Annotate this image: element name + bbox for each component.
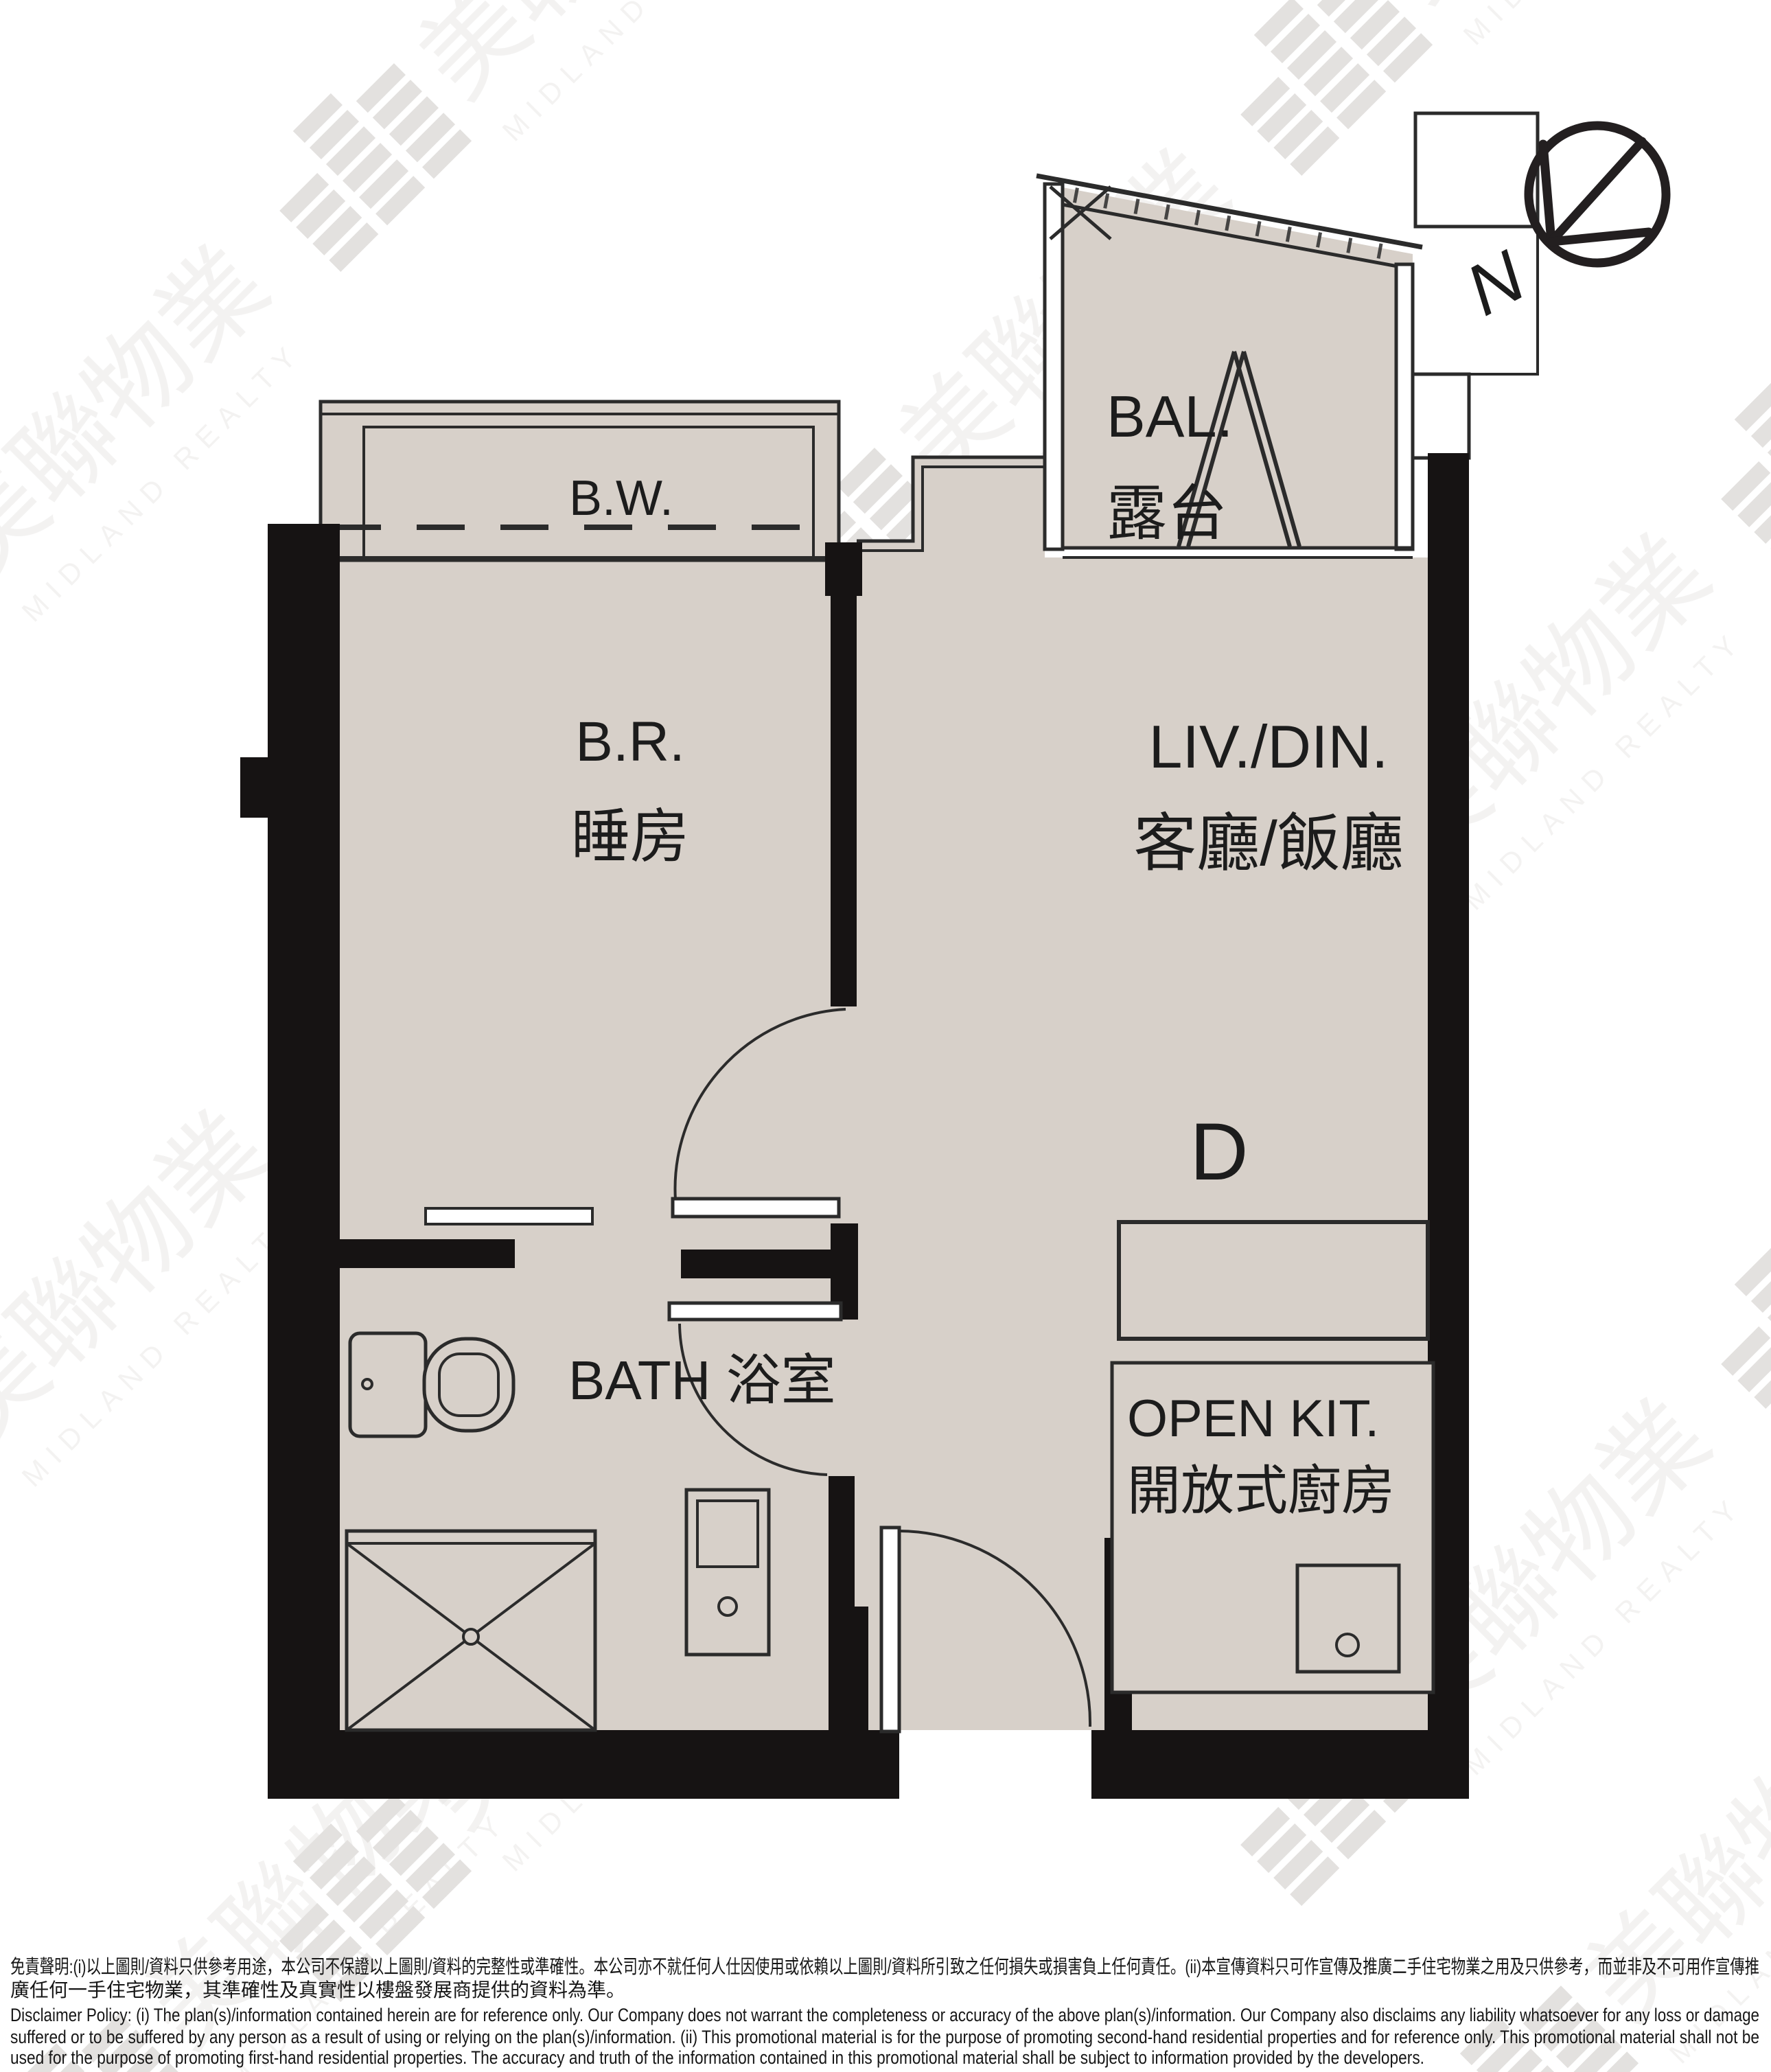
shower-drain bbox=[463, 1629, 478, 1644]
bedroom-living-wall bbox=[831, 560, 857, 1006]
bedroom-bath-wall bbox=[340, 1239, 515, 1268]
compass-arrow-icon bbox=[1543, 141, 1649, 242]
toilet-button bbox=[362, 1379, 372, 1389]
disclaimer-en-line-1: Disclaimer Policy: (i) The plan(s)/infor… bbox=[10, 2005, 1759, 2025]
entry-jamb-left bbox=[829, 1607, 868, 1730]
kitchen-counter bbox=[1119, 1222, 1428, 1339]
toilet-bowl-inner bbox=[439, 1354, 498, 1416]
kitchen-appliance-knob bbox=[1336, 1634, 1358, 1656]
balcony-label-zh: 露台 bbox=[1107, 479, 1227, 547]
balcony-left-wall bbox=[1045, 184, 1063, 549]
bedroom-label-zh: 睡房 bbox=[571, 804, 689, 870]
bath-sink bbox=[697, 1501, 758, 1567]
disclaimer-zh-line-1: 免責聲明:(i)以上圖則/資料只供參考用途，本公司不保證以上圖則/資料的完整性或… bbox=[10, 1956, 1759, 1977]
left-exterior-wall bbox=[268, 524, 340, 1799]
living-dining-label-zh: 客廳/飯廳 bbox=[1133, 809, 1404, 879]
bath-sliding-door bbox=[669, 1303, 841, 1320]
unit-label: D bbox=[1190, 1107, 1248, 1197]
bottom-wall-left bbox=[268, 1730, 899, 1799]
bath-top-wall bbox=[681, 1250, 831, 1278]
bath-sink-drain bbox=[719, 1598, 737, 1615]
bay-window-label: B.W. bbox=[569, 471, 673, 526]
bedroom-door-leaf bbox=[673, 1199, 839, 1217]
floor-plan-page: 美聯物業 MIDLAND REALTY bbox=[0, 0, 1771, 2072]
bottom-wall-right bbox=[1091, 1730, 1469, 1799]
top-right-exterior-ledge bbox=[1415, 113, 1538, 227]
open-kitchen-label: OPEN KIT. bbox=[1127, 1390, 1379, 1448]
disclaimer-zh-line-2: 廣任何一手住宅物業，其準確性及真實性以樓盤發展商提供的資料為準。 bbox=[10, 1979, 625, 2001]
open-kitchen-label-zh: 開放式廚房 bbox=[1127, 1460, 1395, 1521]
living-dining-label: LIV./DIN. bbox=[1149, 713, 1389, 781]
balcony-label: BAL. bbox=[1107, 384, 1233, 450]
balcony-right-wall bbox=[1396, 264, 1413, 549]
disclaimer-en-line-3: used for the purpose of promoting first-… bbox=[10, 2047, 1424, 2068]
exterior-notch bbox=[1413, 374, 1469, 458]
left-wall-pier bbox=[240, 757, 269, 818]
compass-north-label: N bbox=[1454, 235, 1538, 331]
entrance-door-leaf bbox=[881, 1528, 899, 1731]
bathroom-label: BATH 浴室 bbox=[568, 1350, 836, 1411]
floor-plan-canvas: 美聯物業 MIDLAND REALTY bbox=[0, 0, 1771, 2072]
disclaimer-en-line-2: suffered or to be suffered by any person… bbox=[10, 2027, 1759, 2047]
bath-shelf bbox=[426, 1208, 592, 1224]
bedroom-label: B.R. bbox=[575, 711, 684, 773]
